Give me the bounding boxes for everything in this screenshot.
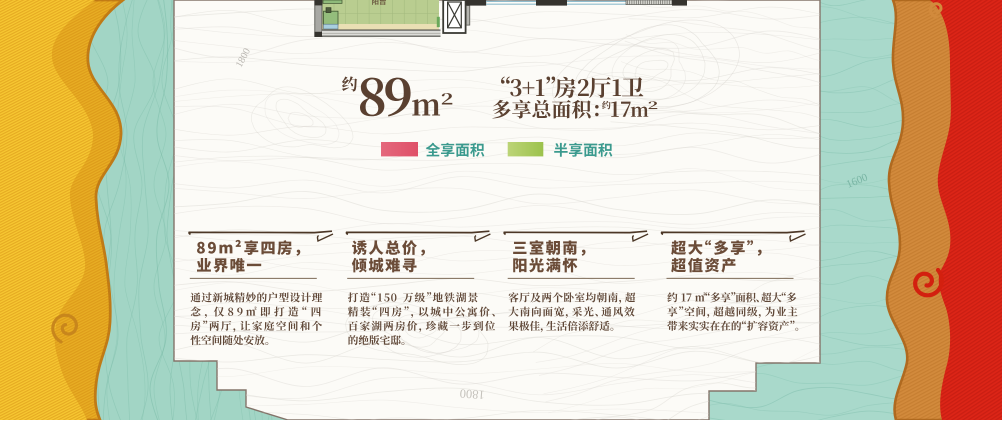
svg-text:1800: 1800 — [459, 386, 485, 402]
